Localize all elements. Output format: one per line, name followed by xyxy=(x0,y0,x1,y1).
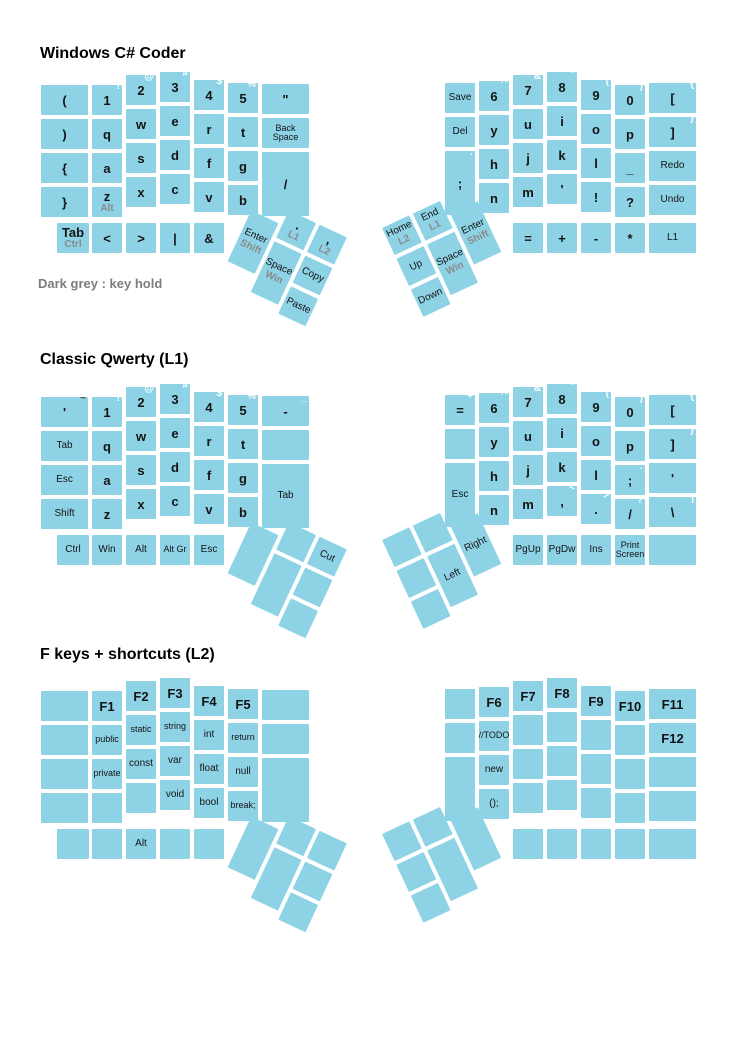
key-sym: (); xyxy=(479,789,509,819)
key-label: < xyxy=(103,232,111,245)
key-null: null xyxy=(228,757,258,787)
key-blank xyxy=(649,829,696,859)
key-label: Alt xyxy=(135,839,147,850)
key-f9: F9 xyxy=(581,686,611,716)
key-label: F6 xyxy=(486,696,501,709)
key-label: u xyxy=(524,430,532,443)
key-string: string xyxy=(160,712,190,742)
key-label: 2 xyxy=(137,396,144,409)
key-undo: Undo xyxy=(649,185,696,215)
key-label: z xyxy=(104,508,111,521)
key-o: o xyxy=(581,426,611,456)
key-label: / xyxy=(628,508,632,521)
key-a: a xyxy=(92,153,122,183)
key-label: 7 xyxy=(524,84,531,97)
key-hold-label: L1 xyxy=(428,219,443,233)
key-label: null xyxy=(235,767,251,778)
key-shift-label: { xyxy=(690,392,694,402)
key-sym: { xyxy=(41,153,88,183)
key-label: e xyxy=(171,115,178,128)
key-p: p xyxy=(615,431,645,461)
key-tab: TabCtrl xyxy=(57,223,89,253)
key-label: F9 xyxy=(588,695,603,708)
key-f12: F12 xyxy=(649,723,696,753)
key-label: void xyxy=(166,790,184,801)
key-w: w xyxy=(126,109,156,139)
key-blank xyxy=(649,791,696,821)
key-label: - xyxy=(594,232,598,245)
key-7: 7& xyxy=(513,387,543,417)
key-0: 0) xyxy=(615,397,645,427)
key-shift-label: # xyxy=(182,381,188,391)
key-d: d xyxy=(160,452,190,482)
left-thumb-cluster: EnterShift.L1SpaceWin,L2CopyPaste xyxy=(217,196,347,326)
key-h: h xyxy=(479,149,509,179)
key-blank xyxy=(262,430,309,460)
key-6: 6^ xyxy=(479,81,509,111)
key-sym: ;: xyxy=(615,465,645,495)
key-label: F11 xyxy=(662,698,684,711)
key-label: 1 xyxy=(103,406,110,419)
key-label: Redo xyxy=(661,161,685,172)
key-label: 1 xyxy=(103,94,110,107)
key-l1: L1 xyxy=(649,223,696,253)
key-6: 6^ xyxy=(479,393,509,423)
key-shift-label: ( xyxy=(606,77,609,87)
key-4: 4$ xyxy=(194,80,224,110)
key-5: 5% xyxy=(228,395,258,425)
key-blank xyxy=(581,788,611,818)
key-shift-label: $ xyxy=(216,389,222,399)
key-f6: F6 xyxy=(479,687,509,717)
key-label: k xyxy=(558,149,565,162)
key-label: n xyxy=(490,504,498,517)
key-alt-gr: Alt Gr xyxy=(160,535,190,565)
key-sym: ! xyxy=(581,182,611,212)
key-shift-label: } xyxy=(690,426,694,436)
key-label: 6 xyxy=(490,90,497,103)
key-var: var xyxy=(160,746,190,776)
key-blank xyxy=(615,793,645,823)
key-label: g xyxy=(239,160,247,173)
key-m: m xyxy=(513,177,543,207)
key-hold-label: L2 xyxy=(397,233,412,247)
key-label: j xyxy=(526,152,530,165)
key-label: { xyxy=(62,162,67,175)
key-s: s xyxy=(126,455,156,485)
left-thumb-cluster xyxy=(217,802,347,932)
key-label: 8 xyxy=(558,393,565,406)
key-shift-label: ~ xyxy=(80,394,86,404)
key-sym: [{ xyxy=(649,83,696,113)
key-label: var xyxy=(168,756,182,767)
key-label: y xyxy=(490,436,497,449)
key-public: public xyxy=(92,725,122,755)
key-f4: F4 xyxy=(194,686,224,716)
key-sym: ]} xyxy=(649,429,696,459)
key-label: 8 xyxy=(558,81,565,94)
key-f11: F11 xyxy=(649,689,696,719)
key-j: j xyxy=(513,143,543,173)
key-esc: Esc xyxy=(194,535,224,565)
layout-2-title: Classic Qwerty (L1) xyxy=(40,352,189,368)
layout-3-title: F keys + shortcuts (L2) xyxy=(40,647,215,663)
key-blank xyxy=(160,829,190,859)
key-label: 0 xyxy=(626,406,633,419)
key-win: Win xyxy=(92,535,122,565)
key-label: _ xyxy=(626,162,633,175)
key-label: F5 xyxy=(235,698,250,711)
key-blank xyxy=(615,759,645,789)
key-blank xyxy=(41,691,88,721)
key-shift-label: * xyxy=(571,69,575,79)
key-label: Back Space xyxy=(262,124,309,143)
key-i: i xyxy=(547,418,577,448)
key-n: n xyxy=(479,183,509,213)
key-label: d xyxy=(171,149,179,162)
key-j: j xyxy=(513,455,543,485)
key-label: Shift xyxy=(54,509,74,520)
key-shift-label: ( xyxy=(606,389,609,399)
key-label: q xyxy=(103,440,111,453)
key-label: w xyxy=(136,118,146,131)
key-shift-label: & xyxy=(534,384,541,394)
key-label: Save xyxy=(449,93,472,104)
key-label: l xyxy=(594,157,598,170)
key-h: h xyxy=(479,461,509,491)
key-blank xyxy=(649,757,696,787)
key-label: Esc xyxy=(201,545,218,556)
key-int: int xyxy=(194,720,224,750)
key-shift-label: { xyxy=(690,80,694,90)
key-label: Tab xyxy=(277,491,293,502)
key-label: d xyxy=(171,461,179,474)
key-label: p xyxy=(626,440,634,453)
key-f2: F2 xyxy=(126,681,156,711)
key-label: r xyxy=(206,123,211,136)
key-shift-label: @ xyxy=(144,72,154,82)
key-shift-label: @ xyxy=(144,384,154,394)
key-label: Esc xyxy=(452,490,469,501)
key-label: Up xyxy=(408,259,424,274)
key-label: . xyxy=(594,503,598,516)
key-blank xyxy=(445,723,475,753)
key-label: F12 xyxy=(661,732,683,745)
key-label: Paste xyxy=(284,296,312,316)
key-label: b xyxy=(239,194,247,207)
key-label: o xyxy=(592,123,600,136)
key-3: 3# xyxy=(160,72,190,102)
key-blank xyxy=(547,746,577,776)
key-label: Ctrl xyxy=(65,545,81,556)
key-3: 3# xyxy=(160,384,190,414)
key-label: ' xyxy=(63,406,66,419)
key-label: k xyxy=(558,461,565,474)
key-label: Del xyxy=(452,127,467,138)
key-label: L1 xyxy=(667,233,678,244)
key-label: F4 xyxy=(201,695,216,708)
key-sym: '~ xyxy=(41,397,88,427)
key-label: s xyxy=(137,464,144,477)
key-label: ] xyxy=(670,126,674,139)
key-label: F7 xyxy=(520,690,535,703)
key-s: s xyxy=(126,143,156,173)
key-sym: '" xyxy=(649,463,696,493)
key-shift-label: % xyxy=(247,392,256,402)
key-label: c xyxy=(171,495,178,508)
key-f5: F5 xyxy=(228,689,258,719)
key-blank xyxy=(581,754,611,784)
key-label: bool xyxy=(200,798,219,809)
key-sym: \| xyxy=(649,497,696,527)
key-1: 1! xyxy=(92,85,122,115)
key-shift-label: ! xyxy=(117,394,120,404)
key-blank xyxy=(547,829,577,859)
key-y: y xyxy=(479,427,509,457)
key-label: break; xyxy=(230,801,255,810)
key-label: F1 xyxy=(99,700,114,713)
key-7: 7& xyxy=(513,75,543,105)
key-sym: } xyxy=(41,187,88,217)
key-label: & xyxy=(204,232,213,245)
key-label: m xyxy=(522,186,534,199)
layout-1-title: Windows C# Coder xyxy=(40,46,186,62)
key-label: 5 xyxy=(239,404,246,417)
key-z: zAlt xyxy=(92,187,122,217)
key-label: Cut xyxy=(318,549,337,565)
key-label: v xyxy=(205,191,212,204)
key-pgdw: PgDw xyxy=(547,535,577,565)
key-back-space: Back Space xyxy=(262,118,309,148)
key-x: x xyxy=(126,489,156,519)
key-label: p xyxy=(626,128,634,141)
key-label: . xyxy=(294,219,303,232)
key-print-screen: Print Screen xyxy=(615,535,645,565)
key-label: h xyxy=(490,470,498,483)
key-x: x xyxy=(126,177,156,207)
key-label: 7 xyxy=(524,396,531,409)
left-thumb-cluster: Cut xyxy=(217,508,347,638)
key-hold-label: Alt xyxy=(100,204,113,214)
key-f: f xyxy=(194,460,224,490)
key-label: F8 xyxy=(554,687,569,700)
key-label: [ xyxy=(670,92,674,105)
key-blank xyxy=(547,712,577,742)
key-label: i xyxy=(560,115,564,128)
key-label: g xyxy=(239,472,247,485)
key-shift-label: $ xyxy=(216,77,222,87)
key-label: i xyxy=(560,427,564,440)
key-shift-label: ? xyxy=(637,496,643,506)
key-m: m xyxy=(513,489,543,519)
key-f7: F7 xyxy=(513,681,543,711)
key-hold-label: Ctrl xyxy=(64,240,81,250)
key-blank xyxy=(445,689,475,719)
key-label: [ xyxy=(670,404,674,417)
key-shift-label: : xyxy=(470,148,473,158)
key-label: new xyxy=(485,765,503,776)
key-u: u xyxy=(513,421,543,451)
key-z: z xyxy=(92,499,122,529)
key-4: 4$ xyxy=(194,392,224,422)
key-shift-label: ! xyxy=(117,82,120,92)
key-p: p xyxy=(615,119,645,149)
key-sym: =+ xyxy=(445,395,475,425)
key-label: 9 xyxy=(592,401,599,414)
key-label: ] xyxy=(670,438,674,451)
key-label: f xyxy=(207,469,211,482)
key-blank xyxy=(513,829,543,859)
key-blank xyxy=(92,793,122,823)
key-del: Del xyxy=(445,117,475,147)
key-label: n xyxy=(490,192,498,205)
key-blank xyxy=(547,780,577,810)
key-label: 9 xyxy=(592,89,599,102)
key-shift-label: } xyxy=(690,114,694,124)
key-label: h xyxy=(490,158,498,171)
key-label: 3 xyxy=(171,393,178,406)
key-const: const xyxy=(126,749,156,779)
key-q: q xyxy=(92,431,122,461)
keyboard-layout-sheet: Windows C# Coder Dark grey : key hold Cl… xyxy=(0,0,736,1041)
key-label: = xyxy=(456,404,464,417)
key-blank xyxy=(41,759,88,789)
key-ins: Ins xyxy=(581,535,611,565)
key-shift: Shift xyxy=(41,499,88,529)
key-new: new xyxy=(479,755,509,785)
key-label: 3 xyxy=(171,81,178,94)
key-sym: ]} xyxy=(649,117,696,147)
key-i: i xyxy=(547,106,577,136)
key-8: 8* xyxy=(547,384,577,414)
key-shift-label: " xyxy=(689,460,694,470)
key-shift-label: : xyxy=(640,462,643,472)
key-sym: + xyxy=(547,223,577,253)
key-shift-label: ^ xyxy=(501,390,507,400)
key-blank xyxy=(513,749,543,779)
key-v: v xyxy=(194,494,224,524)
key-label: = xyxy=(524,232,532,245)
key-shift-label: % xyxy=(247,80,256,90)
key-label: (); xyxy=(489,799,498,810)
key-sym: ) xyxy=(41,119,88,149)
key-l: l xyxy=(581,460,611,490)
key-sym: ? xyxy=(615,187,645,217)
key-label: const xyxy=(129,759,153,770)
key-sym: ' xyxy=(547,174,577,204)
key-label: l xyxy=(594,469,598,482)
key-label: 4 xyxy=(205,89,212,102)
key-paste: Paste xyxy=(278,286,318,326)
key-label: * xyxy=(627,232,632,245)
key-f1: F1 xyxy=(92,691,122,721)
key-label: , xyxy=(560,495,564,508)
key-f3: F3 xyxy=(160,678,190,708)
key-c: c xyxy=(160,174,190,204)
key-pgup: PgUp xyxy=(513,535,543,565)
key-w: w xyxy=(126,421,156,451)
key-label: ? xyxy=(626,196,634,209)
key-sym: ,< xyxy=(547,486,577,516)
key-blank xyxy=(262,724,309,754)
key-label: Undo xyxy=(661,195,685,206)
key-g: g xyxy=(228,151,258,181)
key-shift-label: * xyxy=(571,381,575,391)
key-label: s xyxy=(137,152,144,165)
key-sym: .> xyxy=(581,494,611,524)
key-label: 5 xyxy=(239,92,246,105)
key-label: a xyxy=(103,474,110,487)
key-blank xyxy=(513,783,543,813)
key-label: x xyxy=(137,186,144,199)
key-static: static xyxy=(126,715,156,745)
key-label: , xyxy=(325,233,334,246)
key-label: public xyxy=(95,735,119,744)
key-save: Save xyxy=(445,83,475,113)
key-blank xyxy=(513,715,543,745)
key-t: t xyxy=(228,117,258,147)
key-label: x xyxy=(137,498,144,511)
key-float: float xyxy=(194,754,224,784)
key-label: ; xyxy=(628,474,632,487)
key-sym: _ xyxy=(615,153,645,183)
key-label: Ins xyxy=(589,545,602,556)
key-sym: < xyxy=(92,223,122,253)
key-label: ; xyxy=(458,177,462,190)
key-esc: Esc xyxy=(41,465,88,495)
key-9: 9( xyxy=(581,80,611,110)
key-shift-label: ) xyxy=(640,394,643,404)
key-blank xyxy=(126,783,156,813)
key-label: w xyxy=(136,430,146,443)
key-d: d xyxy=(160,140,190,170)
key-label: r xyxy=(206,435,211,448)
key-label: F2 xyxy=(133,690,148,703)
key-sym: > xyxy=(126,223,156,253)
key-blank xyxy=(278,598,318,638)
key-f8: F8 xyxy=(547,678,577,708)
key-blank xyxy=(649,535,696,565)
key-blank xyxy=(41,725,88,755)
key-return: return xyxy=(228,723,258,753)
key-label: Alt Gr xyxy=(163,545,186,554)
key-label: + xyxy=(558,232,566,245)
key-k: k xyxy=(547,452,577,482)
key-label: ( xyxy=(62,94,66,107)
key-g: g xyxy=(228,463,258,493)
key-label: Tab xyxy=(62,226,84,239)
key-blank xyxy=(615,725,645,755)
key-label: Left xyxy=(443,567,463,584)
key-8: 8* xyxy=(547,72,577,102)
key-label: string xyxy=(164,722,186,731)
key-label: float xyxy=(200,764,219,775)
key-f: f xyxy=(194,148,224,178)
key-0: 0) xyxy=(615,85,645,115)
key-label: PgDw xyxy=(549,545,576,556)
key-sym: ( xyxy=(41,85,88,115)
key-label: t xyxy=(241,438,245,451)
key-label: Copy xyxy=(300,266,326,285)
key-label: Tab xyxy=(56,441,72,452)
key-sym: & xyxy=(194,223,224,253)
key-shift-label: & xyxy=(534,72,541,82)
key-1: 1! xyxy=(92,397,122,427)
key-blank xyxy=(262,690,309,720)
key-shift-label: _ xyxy=(301,393,307,403)
key-shift-label: ^ xyxy=(501,78,507,88)
key-t: t xyxy=(228,429,258,459)
